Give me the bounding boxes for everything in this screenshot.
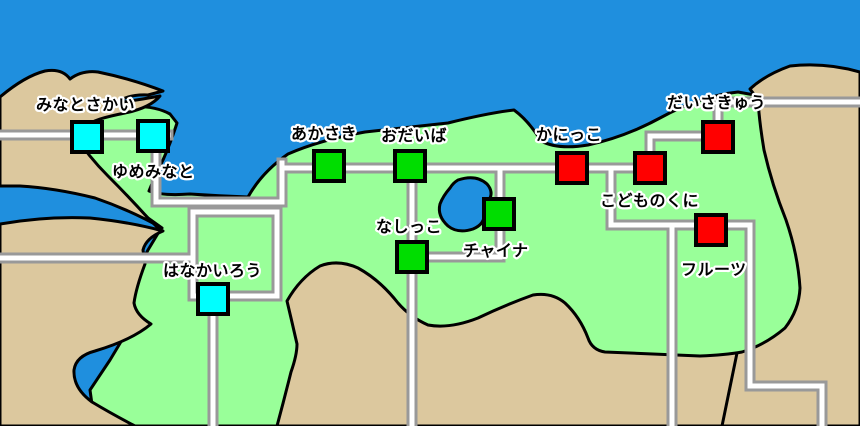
map-canvas: みなとさかいゆめみなとあかさきおだいばなしっこチャイナかにっここどものくにだいさ… bbox=[0, 0, 860, 426]
station-label-10: はなかいろう bbox=[163, 261, 262, 280]
station-square-2[interactable] bbox=[314, 151, 344, 181]
station-label-3: おだいば bbox=[381, 126, 447, 145]
station-label-2: あかさき bbox=[291, 124, 357, 143]
station-label-5: チャイナ bbox=[463, 241, 529, 260]
station-square-4[interactable] bbox=[397, 242, 427, 272]
station-square-5[interactable] bbox=[484, 199, 514, 229]
station-square-3[interactable] bbox=[395, 151, 425, 181]
station-label-9: フルーツ bbox=[681, 260, 747, 279]
station-square-8[interactable] bbox=[703, 122, 733, 152]
station-label-6: かにっこ bbox=[536, 125, 602, 144]
game-world-map: みなとさかいゆめみなとあかさきおだいばなしっこチャイナかにっここどものくにだいさ… bbox=[0, 0, 860, 426]
station-square-6[interactable] bbox=[557, 153, 587, 183]
station-label-4: なしっこ bbox=[376, 217, 442, 236]
station-square-10[interactable] bbox=[198, 284, 228, 314]
station-square-1[interactable] bbox=[138, 121, 168, 151]
station-square-9[interactable] bbox=[696, 215, 726, 245]
station-label-7: こどものくに bbox=[600, 191, 699, 210]
station-label-8: だいさきゅう bbox=[667, 93, 766, 112]
station-square-0[interactable] bbox=[72, 122, 102, 152]
station-label-0: みなとさかい bbox=[36, 95, 135, 114]
station-label-1: ゆめみなと bbox=[112, 162, 195, 181]
station-square-7[interactable] bbox=[635, 153, 665, 183]
